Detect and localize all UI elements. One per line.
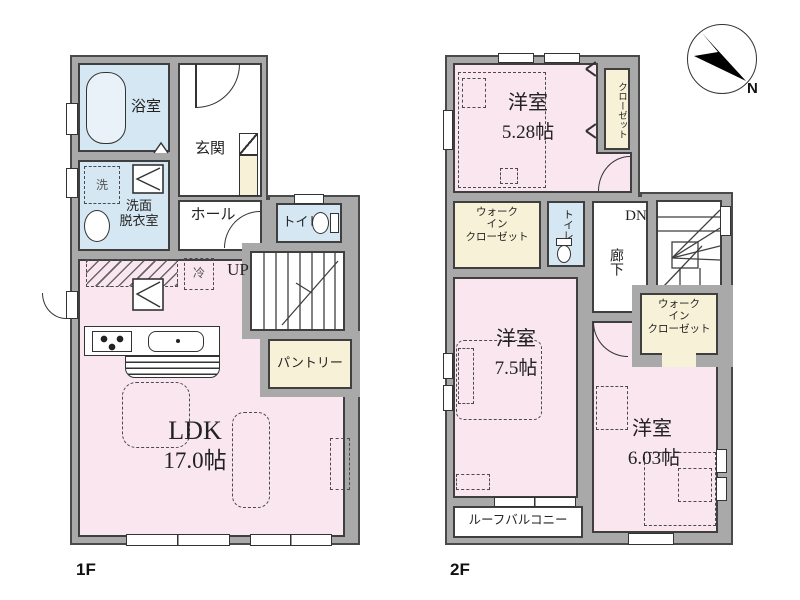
window-bedroom1-top-left: [498, 53, 534, 63]
window-bedroom1-left: [443, 110, 453, 150]
north-arrow-icon: [688, 25, 756, 93]
backdoor-arc: [42, 293, 66, 319]
bedroom2-label: 洋室: [478, 328, 554, 352]
window-ldk-bottom-right: [250, 534, 332, 546]
vanity-icon: [132, 164, 164, 194]
bedroom2-area: 7.5帖: [474, 358, 558, 380]
fridge-box: 冷: [184, 258, 214, 290]
wic2-opening: [662, 351, 696, 367]
bed2-small-outline: [456, 474, 490, 490]
toilet-1f-tank-icon: [330, 213, 339, 233]
hallway-label: 廊下: [602, 234, 622, 290]
toilet-1f-bowl-icon: [312, 212, 329, 234]
toilet-2f-bowl-icon: [557, 245, 571, 263]
balcony-label: ルーフバルコニー: [457, 513, 579, 528]
bath-label: 浴室: [120, 99, 172, 117]
closet-label: クローゼット: [609, 73, 625, 147]
window-bedroom3-right-2: [716, 477, 727, 501]
bedroom1-area: 5.28帖: [475, 122, 581, 144]
kitchen-cabinet-icon: [132, 278, 164, 311]
fridge-label: 冷: [185, 266, 213, 280]
washer-label: 洗: [85, 178, 119, 192]
stairs-1f-treads-icon: [252, 253, 343, 329]
floor-plan-canvas: 洗 洗面 脱衣室 玄関 ホール トイレ 冷 LDK 17.0帖 浴室 UP パン…: [0, 0, 800, 600]
shoe-cabinet: [239, 155, 258, 196]
stairs-2f-treads-icon: [658, 202, 720, 290]
window-washroom-left: [66, 168, 78, 198]
washroom-label: 洗面 脱衣室: [106, 198, 172, 229]
front-door-leaf: [195, 64, 197, 108]
window-bedroom3-bottom: [628, 533, 674, 545]
bedroom3-area: 6.03帖: [602, 448, 706, 470]
up-label: UP: [220, 260, 256, 280]
window-ldk-bottom-left: [126, 534, 230, 546]
north-label: N: [747, 80, 758, 97]
stairs-2f: [656, 200, 722, 292]
bedroom1-label: 洋室: [490, 92, 566, 116]
window-bedroom2-left-2: [443, 385, 453, 411]
tv-board-outline: [330, 438, 350, 490]
bath-door-icon: [152, 141, 170, 154]
bed2-pillow-outline: [458, 348, 474, 404]
floor2-label: 2F: [450, 560, 470, 580]
bed1-pillow-outline: [462, 78, 486, 108]
stove-icon: [92, 331, 132, 352]
window-bedroom3-right-1: [716, 449, 727, 473]
bedroom3-label: 洋室: [614, 418, 690, 442]
ldk-label: LDK: [145, 416, 245, 447]
pantry-label: パントリー: [272, 355, 348, 370]
window-toilet-1f-top: [294, 194, 324, 204]
breakfast-bar: [125, 356, 220, 378]
entrance-label: 玄関: [184, 141, 236, 159]
floor1-label: 1F: [76, 560, 96, 580]
dn-label: DN: [620, 208, 652, 226]
shoe-cabinet-top: [239, 133, 258, 155]
bed3-small-outline: [678, 468, 712, 502]
window-bath-left: [66, 103, 78, 135]
window-bedroom2-left-1: [443, 353, 453, 379]
window-bedroom1-top-right: [544, 53, 580, 63]
backdoor-gap: [66, 291, 78, 319]
stairs-1f: [250, 251, 345, 331]
ldk-area: 17.0帖: [135, 447, 255, 474]
balcony-sliding-door: [494, 497, 576, 507]
wic2-label: ウォーク イン クローゼット: [640, 299, 718, 336]
bed1-small-outline: [500, 168, 518, 184]
wic1-label: ウォーク イン クローゼット: [453, 207, 541, 244]
faucet-dot-icon: [176, 339, 180, 343]
window-stairs-right: [720, 206, 731, 236]
